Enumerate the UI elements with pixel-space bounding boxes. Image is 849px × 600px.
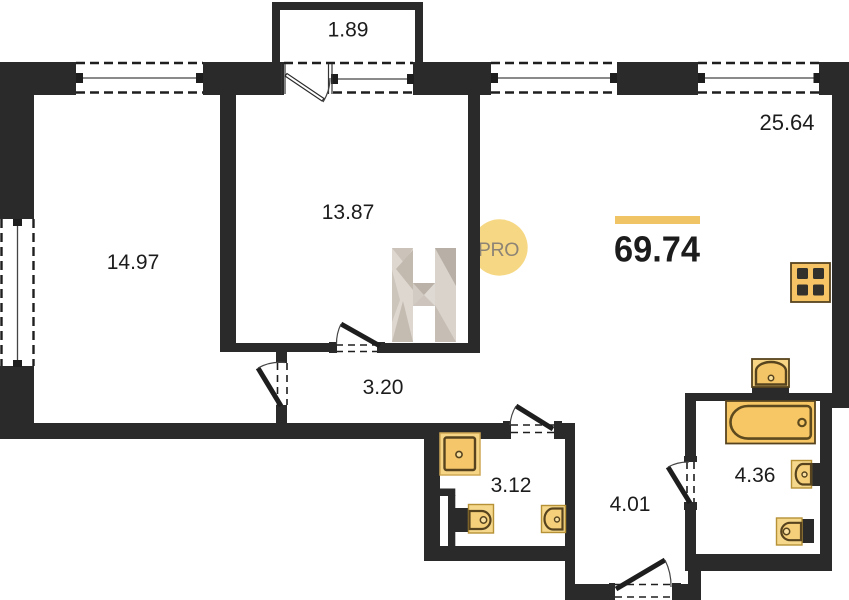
svg-text:13.87: 13.87 <box>322 201 375 224</box>
svg-text:4.01: 4.01 <box>610 493 651 516</box>
svg-text:69.74: 69.74 <box>614 229 700 270</box>
svg-text:4.36: 4.36 <box>735 464 776 487</box>
svg-text:PRO: PRO <box>478 239 519 261</box>
svg-text:14.97: 14.97 <box>107 251 160 274</box>
svg-text:25.64: 25.64 <box>759 110 814 135</box>
svg-text:3.12: 3.12 <box>491 474 532 497</box>
svg-text:1.89: 1.89 <box>328 19 369 42</box>
svg-text:3.20: 3.20 <box>363 376 404 399</box>
